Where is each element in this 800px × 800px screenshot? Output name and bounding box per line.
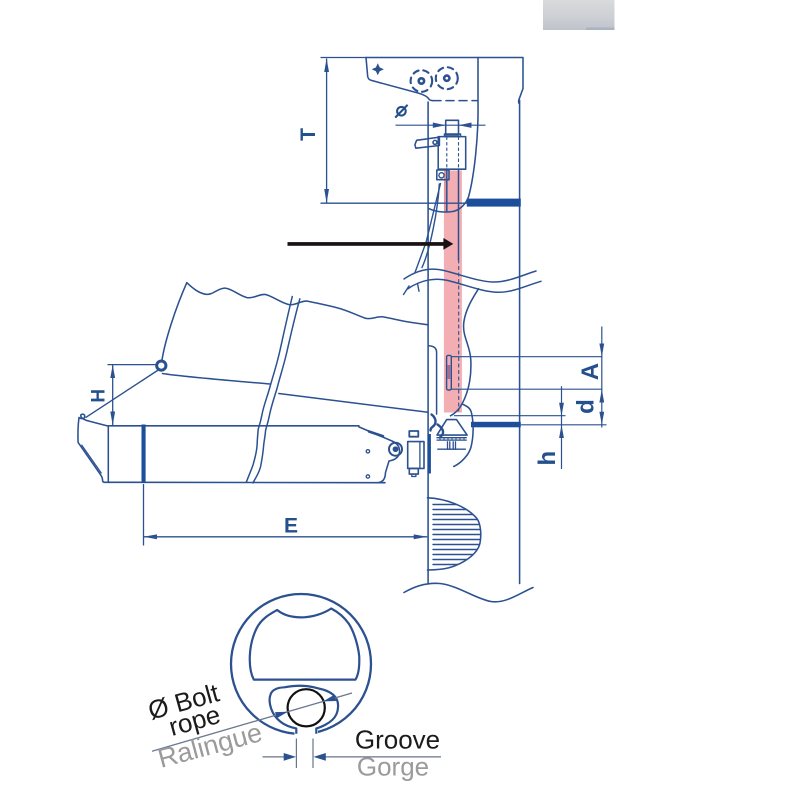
- svg-text:h: h: [534, 451, 561, 466]
- svg-text:Groove: Groove: [355, 725, 440, 755]
- svg-text:Gorge: Gorge: [357, 752, 429, 782]
- svg-text:A: A: [577, 363, 604, 380]
- svg-text:T: T: [297, 128, 320, 141]
- svg-text:E: E: [284, 515, 298, 538]
- svg-text:H: H: [88, 389, 109, 403]
- svg-text:d: d: [573, 399, 600, 414]
